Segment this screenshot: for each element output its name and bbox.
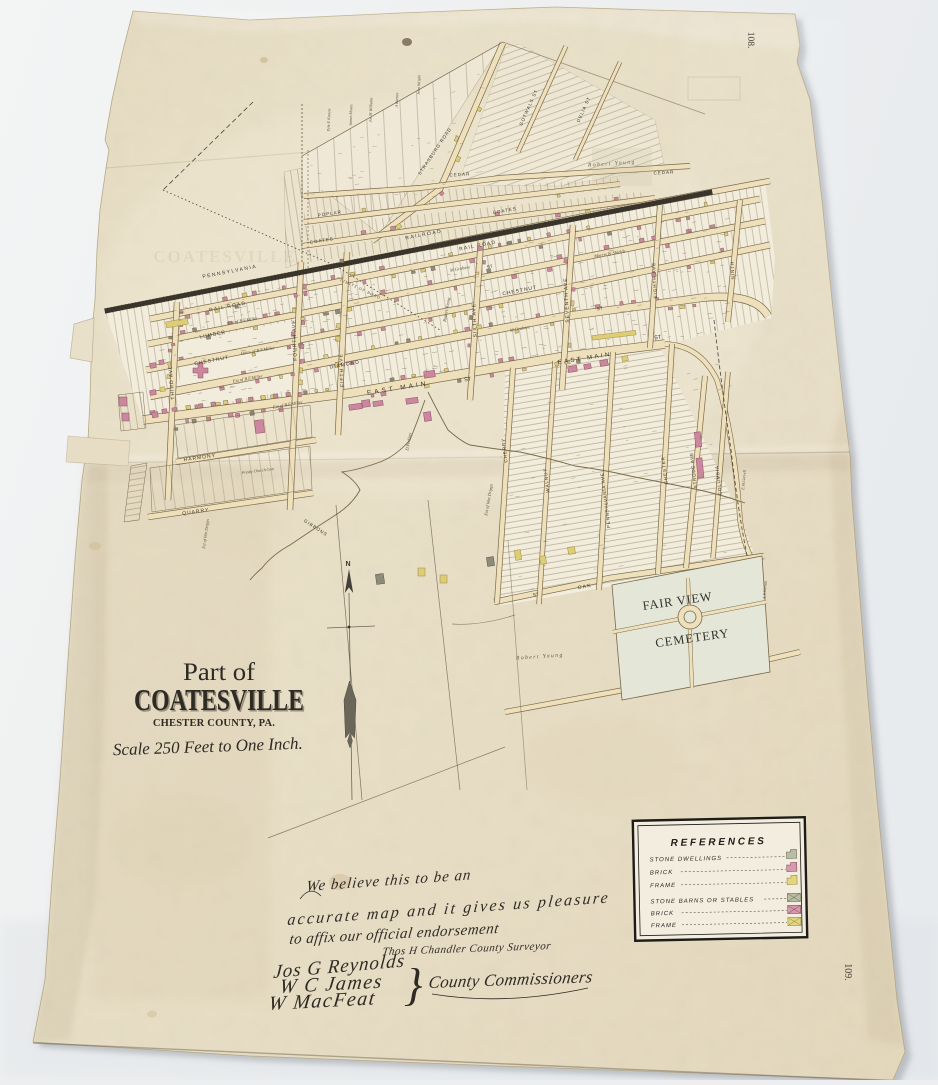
svg-text:BRICK: BRICK [651, 911, 674, 917]
svg-text:ST: ST [596, 306, 603, 312]
svg-text:}: } [404, 959, 422, 1010]
svg-text:109.: 109. [842, 963, 853, 981]
svg-text:108.: 108. [745, 32, 755, 49]
svg-text:Pyle E Krauss: Pyle E Krauss [326, 108, 332, 132]
svg-text:A Barnes: A Barnes [394, 92, 400, 108]
svg-text:COATESVILLE: COATESVILLE [153, 247, 297, 266]
svg-text:NINTH: NINTH [730, 261, 736, 280]
svg-text:FRAME: FRAME [650, 883, 676, 890]
svg-text:N: N [345, 561, 350, 568]
svg-text:John Wright: John Wright [416, 74, 422, 95]
svg-text:James Moses: James Moses [348, 104, 354, 126]
svg-text:COATESVILLE: COATESVILLE [134, 682, 304, 717]
svg-text:FRAME: FRAME [651, 923, 677, 930]
svg-text:Jos M Williams: Jos M Williams [368, 97, 374, 122]
svg-text:CHESTER COUNTY, PA.: CHESTER COUNTY, PA. [153, 718, 275, 729]
svg-text:R E F E R E N C E S: R E F E R E N C E S [670, 836, 764, 849]
svg-text:BRICK: BRICK [650, 870, 673, 876]
